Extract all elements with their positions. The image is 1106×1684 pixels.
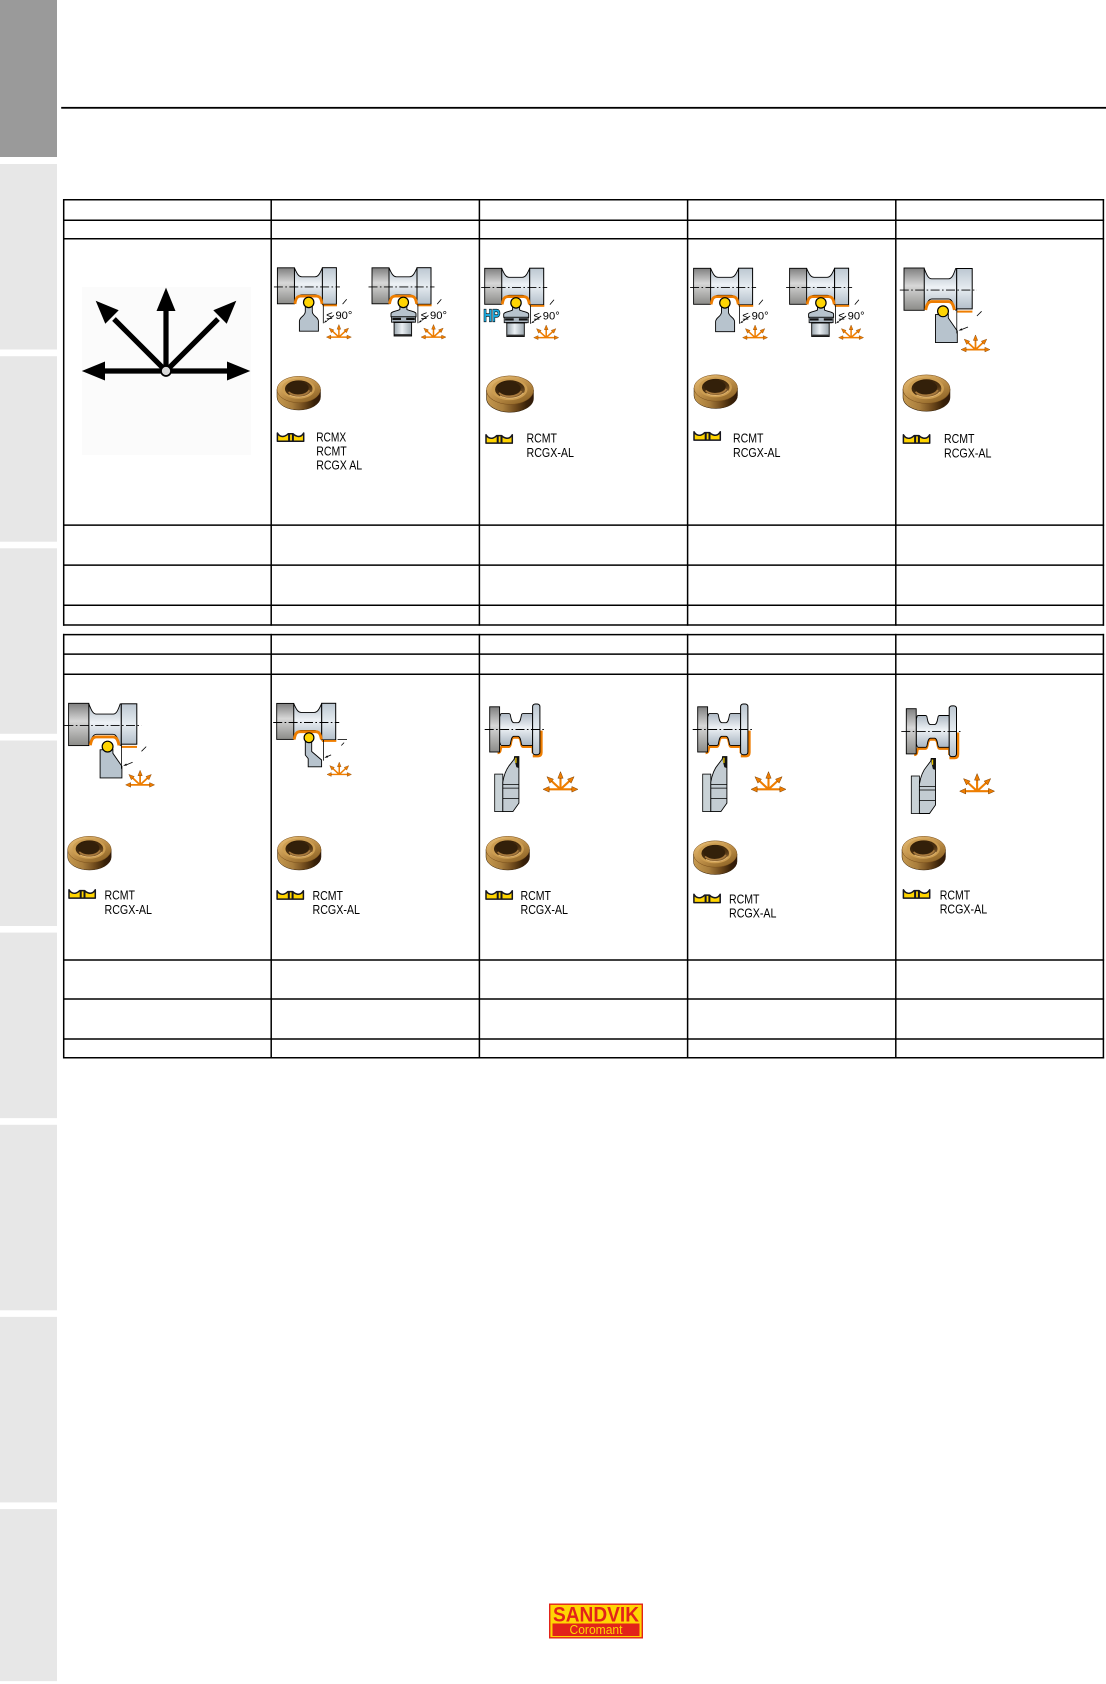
svg-text:RCMT: RCMT: [940, 889, 971, 903]
svg-text:RCGX-AL: RCGX-AL: [733, 446, 781, 460]
svg-text:RCMT: RCMT: [521, 889, 552, 903]
svg-text:RCMX: RCMX: [316, 431, 347, 445]
svg-text:HP: HP: [483, 306, 500, 326]
svg-text:RCMT: RCMT: [527, 432, 558, 446]
svg-text:RCGX-AL: RCGX-AL: [105, 903, 153, 917]
svg-text:RCGX-AL: RCGX-AL: [521, 903, 569, 917]
svg-text:RCMT: RCMT: [733, 432, 764, 446]
svg-text:RCGX-AL: RCGX-AL: [944, 446, 992, 460]
svg-text:RCGX-AL: RCGX-AL: [313, 903, 361, 917]
svg-text:RCMT: RCMT: [316, 444, 347, 458]
svg-text:RCGX-AL: RCGX-AL: [940, 903, 988, 917]
svg-text:RCGX AL: RCGX AL: [316, 458, 362, 472]
svg-text:RCMT: RCMT: [105, 889, 136, 903]
svg-text:RCMT: RCMT: [313, 889, 344, 903]
svg-text:RCGX-AL: RCGX-AL: [729, 907, 777, 921]
svg-text:RCMT: RCMT: [944, 432, 975, 446]
svg-text:RCMT: RCMT: [729, 892, 760, 906]
svg-text:RCGX-AL: RCGX-AL: [527, 446, 575, 460]
